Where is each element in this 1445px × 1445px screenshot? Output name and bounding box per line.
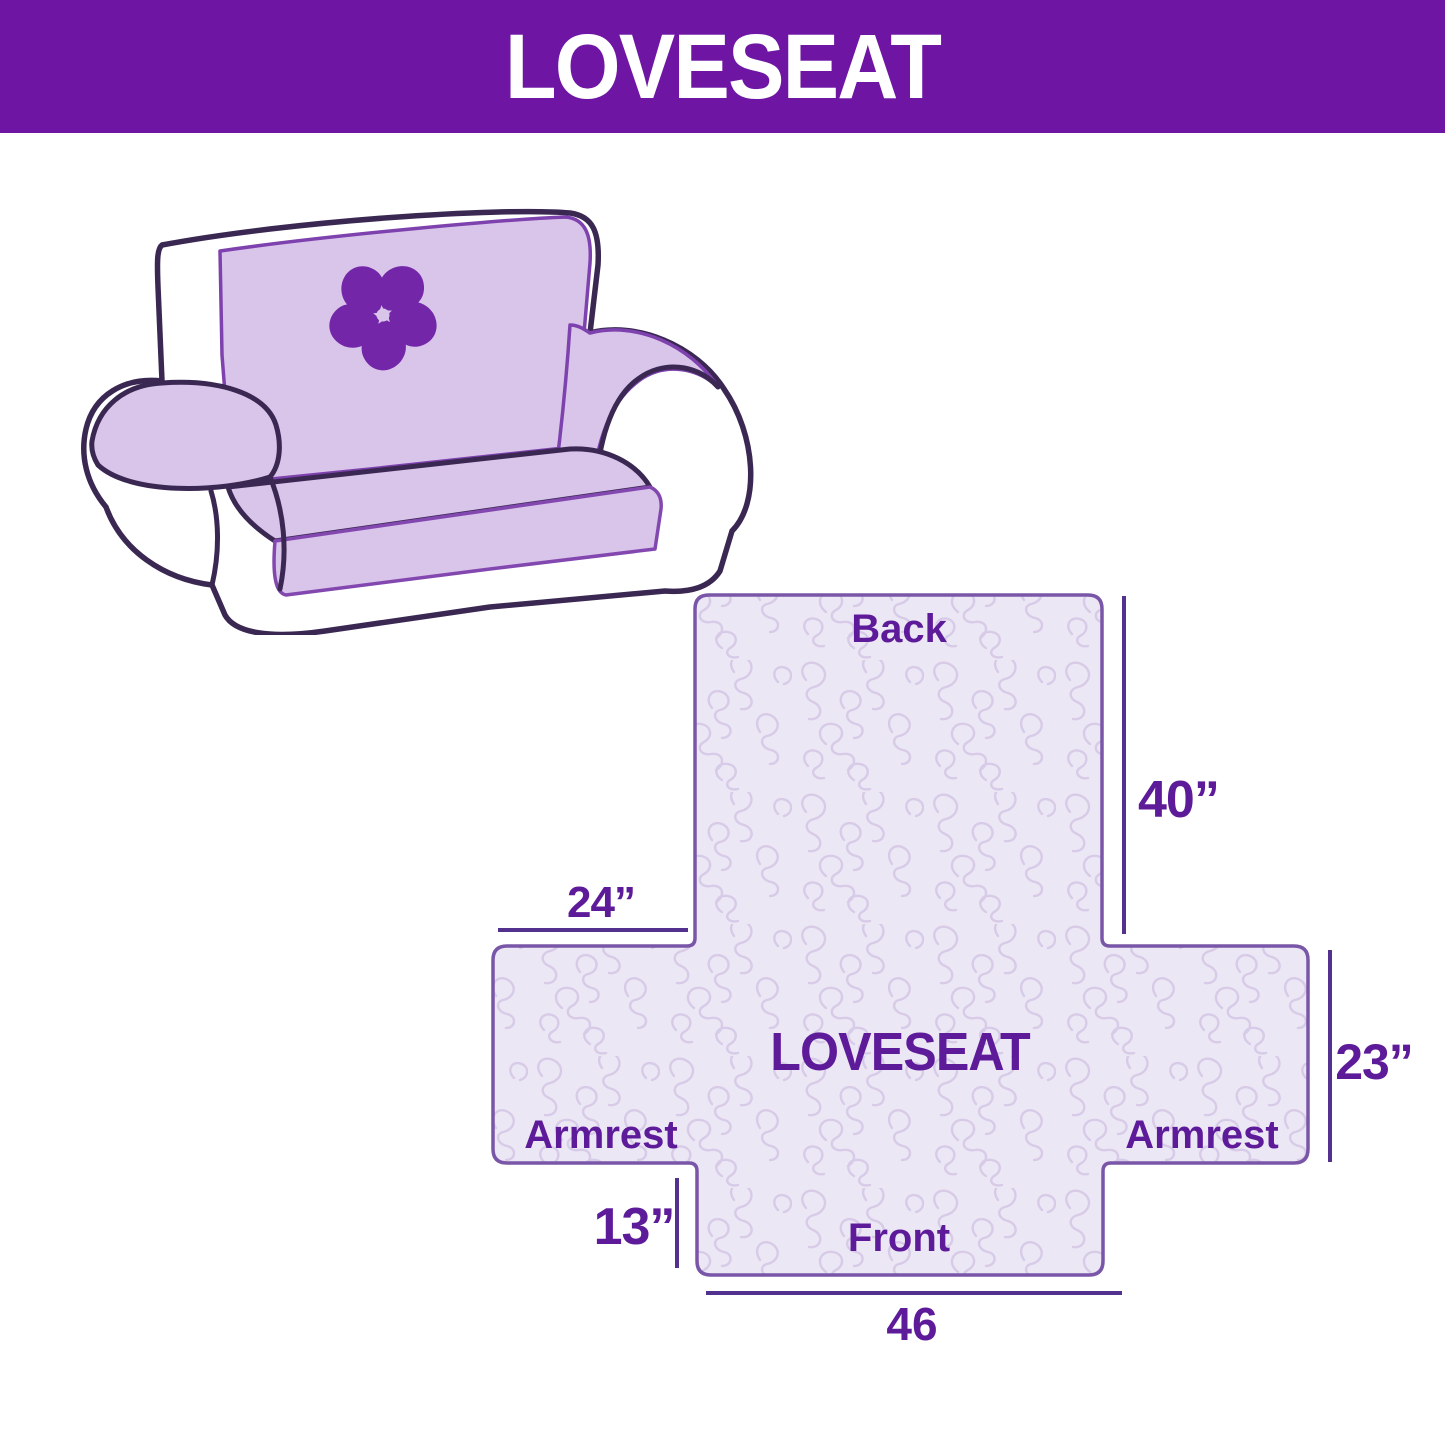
front-width-value: 46 — [886, 1301, 937, 1347]
page: LOVESEAT — [0, 0, 1445, 1445]
front-flap-height-value: 13” — [594, 1201, 675, 1253]
cover-shape-diagram — [480, 582, 1344, 1289]
dimension-line-armrest-top-width — [498, 928, 688, 932]
sofa-left-arm-drape — [92, 382, 280, 488]
dimension-line-front-width — [706, 1291, 1122, 1295]
front-label: Front — [848, 1218, 950, 1258]
header-title: LOVESEAT — [505, 21, 940, 113]
dimension-line-back-height — [1122, 596, 1126, 934]
armrest-right-label: Armrest — [1125, 1115, 1278, 1155]
header-banner: LOVESEAT — [0, 0, 1445, 133]
back-label: Back — [851, 609, 947, 649]
back-height-value: 40” — [1138, 774, 1219, 826]
sofa-illustration — [70, 195, 800, 635]
diagram-title: LOVESEAT — [770, 1025, 1030, 1079]
armrest-top-width-value: 24” — [567, 881, 635, 925]
dimension-line-front-flap-height — [675, 1178, 679, 1268]
cover-cross-shape — [493, 595, 1308, 1275]
armrest-left-label: Armrest — [524, 1115, 677, 1155]
dimension-line-side-height — [1328, 950, 1332, 1162]
side-height-value: 23” — [1335, 1037, 1413, 1087]
